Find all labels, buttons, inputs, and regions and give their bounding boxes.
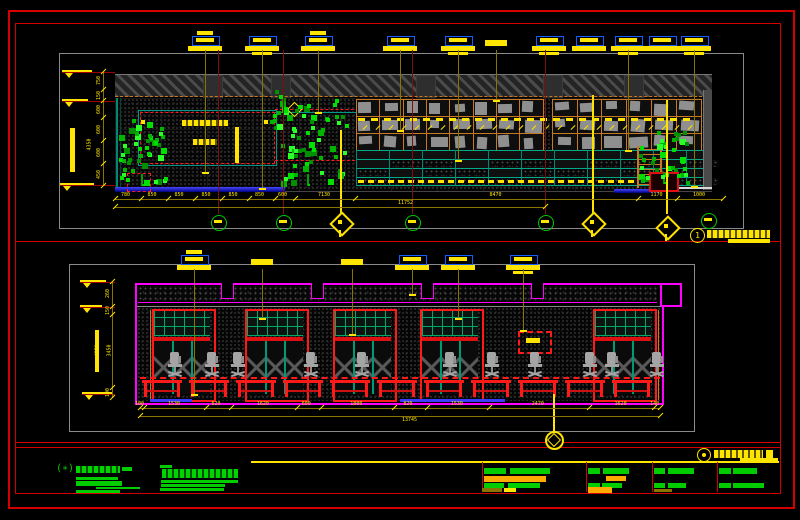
callout-topbar bbox=[197, 31, 213, 35]
bay-transom bbox=[422, 311, 478, 336]
feature-ext-dash-bot bbox=[275, 160, 355, 161]
chair-arm bbox=[615, 356, 618, 363]
dim-label: 1530 bbox=[168, 402, 180, 407]
grid-bubble-label bbox=[279, 220, 287, 223]
leader-end-tick bbox=[409, 294, 416, 296]
grid-bubble bbox=[538, 215, 554, 231]
cabinet-front bbox=[358, 169, 389, 176]
logo-addr-bar-3 bbox=[96, 487, 140, 489]
shelf-dim-minibar bbox=[475, 118, 482, 121]
dim-label: 620 bbox=[212, 402, 221, 407]
feature-corner-dot-2 bbox=[264, 120, 268, 124]
shelf-item bbox=[429, 103, 440, 114]
dim-label: 1620 bbox=[257, 402, 269, 407]
dim-label: 1170 bbox=[651, 193, 663, 198]
leader-line bbox=[458, 50, 459, 160]
dim-label: 7130 bbox=[318, 193, 330, 198]
desk-shelf bbox=[617, 390, 647, 392]
desk-shelf bbox=[194, 390, 224, 392]
right-end-wall bbox=[703, 90, 712, 190]
top-view-title-bubble: 1 bbox=[690, 228, 705, 243]
leader-line bbox=[262, 269, 263, 318]
desk-top bbox=[565, 380, 605, 383]
cabinet-dim-minibar bbox=[378, 180, 384, 183]
shelf-dim-minibar bbox=[384, 118, 391, 121]
dim-line bbox=[140, 408, 660, 409]
top-view-title-number: 1 bbox=[695, 231, 700, 240]
shelf-dim-minibar bbox=[462, 118, 469, 121]
titleblock-cell-divider bbox=[717, 462, 718, 492]
leader-line-darkred bbox=[412, 50, 413, 214]
callout-box-fill bbox=[185, 257, 203, 261]
shelf-item bbox=[679, 101, 695, 111]
shelf-dim-minibar bbox=[605, 118, 612, 121]
grid-bubble-label bbox=[541, 220, 549, 223]
notes-bar-3 bbox=[161, 484, 225, 487]
chair-arm bbox=[593, 356, 596, 363]
callout-box-fill bbox=[685, 38, 703, 42]
ladder-rung bbox=[637, 164, 662, 165]
detail-marker-tail bbox=[339, 230, 341, 237]
callout-box-fill bbox=[196, 38, 214, 42]
dim-label: 780 bbox=[121, 193, 130, 198]
field-label-bar bbox=[733, 468, 757, 474]
ladder-rung bbox=[637, 169, 662, 170]
top-view-title-underbar bbox=[728, 239, 770, 243]
leader-end-tick bbox=[397, 130, 404, 132]
shelf-dim-minibar bbox=[644, 118, 651, 121]
bay-glazing bbox=[595, 341, 651, 394]
field-value-bar bbox=[606, 476, 626, 481]
logo-addr-bar-4 bbox=[76, 490, 120, 493]
grid-bubble bbox=[701, 213, 717, 229]
leader-line bbox=[262, 50, 263, 188]
titleblock-second-line bbox=[15, 447, 780, 448]
grid-bubble-label bbox=[704, 218, 712, 221]
leader-line bbox=[318, 50, 319, 112]
desk-top bbox=[142, 380, 182, 383]
leader-end-tick bbox=[455, 160, 462, 162]
chair-arm bbox=[538, 356, 541, 363]
callout-box-fill bbox=[580, 38, 598, 42]
desk-leg-r bbox=[365, 383, 368, 397]
cabinet-dim-minibar bbox=[528, 180, 534, 183]
grid-bubble bbox=[276, 215, 292, 231]
bay-transom bbox=[154, 311, 210, 336]
shelf-dim-minibar bbox=[670, 118, 677, 121]
cabinet-dim-minibar bbox=[428, 180, 434, 183]
shelf-item bbox=[604, 136, 622, 148]
callout-box-fill bbox=[514, 257, 532, 261]
shelf-item bbox=[580, 103, 593, 113]
section-divider-line bbox=[15, 241, 780, 242]
callout-box-fill bbox=[540, 38, 558, 42]
leader-line bbox=[194, 269, 195, 394]
shelf-dim-minibar bbox=[527, 118, 534, 121]
shelf-dim-minibar bbox=[449, 118, 456, 121]
shelf-dim-minibar bbox=[631, 118, 638, 121]
grid-bubble bbox=[211, 215, 227, 231]
vdim-label: 600 bbox=[97, 104, 102, 113]
chair-arm bbox=[495, 356, 498, 363]
elevation-marker-tri bbox=[85, 395, 93, 400]
grid-bubble-label bbox=[408, 220, 416, 223]
cabinet-front bbox=[424, 160, 455, 167]
elev2-ceiling-gap bbox=[531, 283, 544, 299]
cabinet-dim-minibar bbox=[438, 180, 444, 183]
vdim-label: 100 bbox=[106, 388, 111, 397]
ladder-rail-l bbox=[637, 146, 639, 188]
dim-label: 850 bbox=[175, 193, 184, 198]
cabinet-vline bbox=[686, 150, 687, 186]
cabinet-dim-minibar bbox=[618, 180, 624, 183]
detail-marker-dot bbox=[590, 220, 594, 224]
shelf-item bbox=[654, 135, 666, 146]
callout-box-fill bbox=[619, 38, 637, 42]
shelf-dim-minibar bbox=[683, 118, 690, 121]
logo-name-tail bbox=[122, 467, 132, 471]
callout-underbar bbox=[645, 46, 679, 51]
leader-line bbox=[694, 50, 695, 186]
chair-arm bbox=[178, 356, 181, 363]
shelf-item bbox=[555, 102, 570, 111]
callout-underbar bbox=[532, 46, 566, 51]
elevation-marker-tri bbox=[83, 283, 91, 288]
desk-top bbox=[518, 380, 558, 383]
desk-shelf bbox=[382, 390, 412, 392]
elev2-orange-post-l bbox=[150, 310, 151, 400]
shelf-item bbox=[606, 101, 617, 109]
callout-box-fill bbox=[391, 38, 409, 42]
vdim-label: 600 bbox=[97, 147, 102, 156]
leader-end-tick bbox=[493, 100, 500, 102]
dim-line-total bbox=[115, 207, 545, 208]
desk-leg-r bbox=[224, 383, 227, 397]
callout-label-bar bbox=[485, 40, 507, 46]
callout-box-fill bbox=[449, 38, 467, 42]
field-value-bar bbox=[588, 487, 612, 493]
shelf-dim-minibar bbox=[488, 118, 495, 121]
callout-box-fill bbox=[253, 38, 271, 42]
field-label-bar bbox=[668, 468, 694, 474]
leader-line bbox=[400, 50, 401, 130]
callout-box-fill bbox=[309, 38, 327, 42]
logo-addr-bar-2 bbox=[76, 481, 122, 486]
elevation-marker-tri bbox=[65, 102, 73, 107]
bottom-view-title-underbar bbox=[740, 458, 778, 462]
leader-line bbox=[412, 269, 413, 294]
shelf-item bbox=[359, 136, 373, 145]
callout-underbar2 bbox=[539, 52, 559, 55]
bay-mullion-2 bbox=[372, 341, 374, 394]
dim-line-total bbox=[140, 416, 660, 417]
top-view-title-text bbox=[707, 230, 770, 238]
cabinet-dim-minibar bbox=[488, 180, 494, 183]
leader-line-darkred bbox=[545, 50, 546, 214]
desk-shelf bbox=[241, 390, 271, 392]
cabinet-front bbox=[391, 160, 422, 167]
note-box-bar bbox=[526, 338, 540, 343]
field-label-bar bbox=[654, 483, 665, 488]
shelf-item bbox=[498, 104, 513, 114]
wall-end-teal-1 bbox=[116, 98, 118, 192]
shelf-dim-minibar bbox=[371, 118, 378, 121]
shelf-dim-minibar bbox=[579, 118, 586, 121]
chair-arm bbox=[241, 356, 244, 363]
elev2-ceiling-gap bbox=[311, 283, 324, 299]
cabinet-vline bbox=[455, 150, 456, 186]
dim-label-total: 13745 bbox=[402, 418, 417, 423]
shelf-item bbox=[679, 135, 693, 144]
elevation-value-bar bbox=[70, 128, 75, 172]
leader-line-bright bbox=[553, 394, 555, 431]
field-label-bar bbox=[719, 483, 731, 488]
shelf-item bbox=[431, 137, 448, 147]
cabinet-vline bbox=[356, 150, 357, 186]
feature-box-vtext-bar bbox=[235, 127, 239, 163]
dim-label: 2470 bbox=[532, 402, 544, 407]
cabinet-dim-minibar bbox=[418, 180, 424, 183]
cabinet-dim-minibar bbox=[498, 180, 504, 183]
leader-end-tick bbox=[625, 150, 632, 152]
elev2-ceiling-gap bbox=[221, 283, 234, 299]
dim-label: 140 bbox=[650, 402, 659, 407]
chair-arm bbox=[314, 356, 317, 363]
desk-shelf bbox=[570, 390, 600, 392]
elevation-marker-tri bbox=[65, 73, 73, 78]
cabinet-dim-minibar bbox=[568, 180, 574, 183]
shelf-item bbox=[475, 102, 488, 115]
vdim-label: 450 bbox=[97, 170, 102, 179]
desk-leg-r bbox=[600, 383, 603, 397]
bay-glazing bbox=[335, 341, 391, 394]
desk-shelf bbox=[288, 390, 318, 392]
notes-bar-1 bbox=[162, 469, 238, 478]
vdim-label: 750 bbox=[97, 76, 102, 85]
shelf-dim-minibar bbox=[501, 118, 508, 121]
dim-label: 820 bbox=[403, 402, 412, 407]
dim-label: 600 bbox=[302, 402, 311, 407]
elevation-marker-tri bbox=[83, 308, 91, 313]
chair-arm bbox=[453, 356, 456, 363]
leader-line bbox=[458, 269, 459, 318]
desk-top bbox=[283, 380, 323, 383]
cabinet-dim-minibar bbox=[448, 180, 454, 183]
cabinet-dim-minibar bbox=[458, 180, 464, 183]
bay-mullion-2 bbox=[632, 341, 634, 394]
titleblock-cell-divider bbox=[652, 462, 653, 492]
vdim-total: 4350 bbox=[88, 138, 93, 150]
dim-label: 8470 bbox=[490, 193, 502, 198]
desk-top bbox=[377, 380, 417, 383]
vdim-label: 260 bbox=[106, 289, 111, 298]
vdim-line bbox=[112, 282, 113, 398]
desk-shelf bbox=[476, 390, 506, 392]
shelf-dim-minibar bbox=[514, 118, 521, 121]
bay-transom bbox=[247, 311, 303, 336]
callout-box-fill bbox=[653, 38, 671, 42]
cabinet-front bbox=[556, 169, 587, 176]
field-label-bar bbox=[654, 468, 665, 474]
elev2-ceiling-gap bbox=[421, 283, 434, 299]
vdim-label: 3450 bbox=[108, 344, 113, 356]
leader-line bbox=[205, 50, 206, 172]
dim-label: 1530 bbox=[451, 402, 463, 407]
field-small-bar bbox=[654, 489, 672, 492]
shelf-item bbox=[455, 104, 466, 113]
callout-label-bar bbox=[251, 259, 273, 265]
cabinet-dim-minibar bbox=[478, 180, 484, 183]
titleblock-top-line bbox=[15, 442, 780, 443]
desk-top bbox=[471, 380, 511, 383]
shelf-item bbox=[522, 101, 533, 112]
desk-leg-r bbox=[318, 383, 321, 397]
cabinet-dim-minibar bbox=[578, 180, 584, 183]
titleblock-yellow-rule bbox=[251, 461, 779, 463]
elevation-value-bar bbox=[95, 330, 99, 372]
desk-top bbox=[189, 380, 229, 383]
field-label-bar bbox=[588, 468, 600, 474]
detail-marker-tail bbox=[591, 230, 593, 237]
dim-label: 1000 bbox=[693, 193, 705, 198]
vdim-label: 600 bbox=[97, 124, 102, 133]
bottom-view-title-text bbox=[714, 450, 763, 458]
cabinet-dim-minibar bbox=[608, 180, 614, 183]
shelf-item bbox=[358, 102, 371, 113]
leader-end-tick bbox=[315, 112, 322, 114]
field-label-bar bbox=[733, 483, 764, 488]
bay-mullion-1 bbox=[440, 341, 442, 394]
leader-end-tick bbox=[691, 186, 698, 188]
tree-left bbox=[142, 184, 144, 186]
tree-middle bbox=[308, 184, 310, 186]
shelf-item bbox=[454, 135, 465, 148]
shelf-dim-minibar bbox=[436, 118, 443, 121]
grid-bubble-label bbox=[214, 220, 222, 223]
bay-glazing bbox=[154, 341, 210, 394]
shelf-dim-minibar bbox=[553, 118, 560, 121]
shelf-item bbox=[558, 136, 572, 145]
leader-line bbox=[352, 269, 353, 334]
callout-label-bar bbox=[341, 259, 363, 265]
bottom-view-title-bubble-dot bbox=[702, 453, 706, 457]
desk-shelf bbox=[335, 390, 365, 392]
feature-corner-dot-1 bbox=[141, 120, 145, 124]
desk-top bbox=[612, 380, 652, 383]
cabinet-dim-minibar bbox=[538, 180, 544, 183]
shelf-item bbox=[498, 135, 509, 148]
cabinet-front bbox=[424, 169, 455, 176]
leader-line bbox=[628, 50, 629, 150]
dim-label-total: 11752 bbox=[398, 201, 413, 206]
dim-line bbox=[115, 199, 723, 200]
elevation-marker-line bbox=[62, 101, 115, 102]
cabinet-vline bbox=[554, 150, 555, 186]
bay-transom bbox=[335, 311, 391, 336]
detail-marker-tail bbox=[665, 234, 667, 241]
desk-shelf bbox=[147, 390, 177, 392]
dim-label: 850 bbox=[202, 193, 211, 198]
cabinet-front bbox=[490, 160, 521, 167]
chair-arm bbox=[365, 356, 368, 363]
cabinet-dim-minibar bbox=[628, 180, 634, 183]
leader-end-tick bbox=[202, 172, 209, 174]
bay-transom bbox=[595, 311, 651, 336]
dim-label: 850 bbox=[229, 193, 238, 198]
cabinet-front bbox=[457, 169, 488, 176]
desk-leg-r bbox=[506, 383, 509, 397]
leader-line-darkred bbox=[283, 50, 284, 214]
desk-leg-r bbox=[412, 383, 415, 397]
shelf-item bbox=[630, 101, 641, 112]
dim-label: 1620 bbox=[615, 402, 627, 407]
field-label-bar bbox=[484, 468, 506, 474]
detail-marker-dot bbox=[338, 220, 342, 224]
dim-label: 600 bbox=[278, 193, 287, 198]
callout-underbar bbox=[572, 46, 606, 51]
bottom-view-title-scale bbox=[766, 450, 773, 458]
field-value-bar bbox=[484, 476, 546, 482]
logo-name-bar bbox=[76, 466, 120, 473]
elev2-notch bbox=[660, 283, 682, 307]
desk-top bbox=[330, 380, 370, 383]
shelf-dim-minibar bbox=[566, 118, 573, 121]
wall-end-teal-2 bbox=[120, 98, 121, 192]
leader-line bbox=[496, 50, 497, 100]
leader-line bbox=[523, 269, 524, 330]
shelf-item bbox=[384, 135, 397, 147]
field-small-bar bbox=[482, 488, 502, 492]
notes-bar-4 bbox=[160, 488, 224, 491]
cabinet-dim-minibar bbox=[518, 180, 524, 183]
field-small-bar bbox=[504, 488, 516, 492]
shelf-item bbox=[477, 137, 488, 149]
desk-shelf bbox=[429, 390, 459, 392]
field-label-bar bbox=[719, 468, 731, 474]
dim-label: 850 bbox=[255, 193, 264, 198]
vdim-label: 150 bbox=[97, 90, 102, 99]
notes-bar-0 bbox=[160, 465, 172, 468]
logo-addr-bar-1 bbox=[76, 477, 118, 480]
elev2-ceiling bbox=[138, 286, 657, 303]
dim-label: 100 bbox=[135, 402, 144, 407]
leader-end-tick bbox=[259, 188, 266, 190]
desk-leg-r bbox=[647, 383, 650, 397]
leader-line-darkred bbox=[218, 50, 219, 214]
elevation-marker-line bbox=[60, 185, 115, 186]
leader-end-tick bbox=[349, 334, 356, 336]
cabinet-front bbox=[490, 178, 521, 185]
grid-bubble bbox=[405, 215, 421, 231]
leader-end-tick bbox=[191, 394, 198, 396]
cad-sheet: 1 78085085085085085060071308470117010001… bbox=[0, 0, 800, 520]
shelf-dim-minibar bbox=[423, 118, 430, 121]
shelf-item bbox=[524, 137, 533, 148]
shelf-item bbox=[655, 120, 673, 131]
elevation-marker-tri bbox=[63, 186, 71, 191]
callout-box-fill bbox=[449, 257, 467, 261]
titleblock-cell-divider bbox=[586, 462, 587, 492]
callout-topbar bbox=[186, 250, 202, 254]
leader-line-bright bbox=[340, 130, 342, 214]
ladder-rung bbox=[637, 149, 662, 150]
cabinet-dim-minibar bbox=[548, 180, 554, 183]
planter-dashed-left bbox=[127, 173, 151, 192]
desk-leg-r bbox=[459, 383, 462, 397]
field-label-bar bbox=[668, 483, 686, 488]
bay-glazing bbox=[247, 341, 303, 394]
leader-end-tick bbox=[520, 330, 527, 332]
